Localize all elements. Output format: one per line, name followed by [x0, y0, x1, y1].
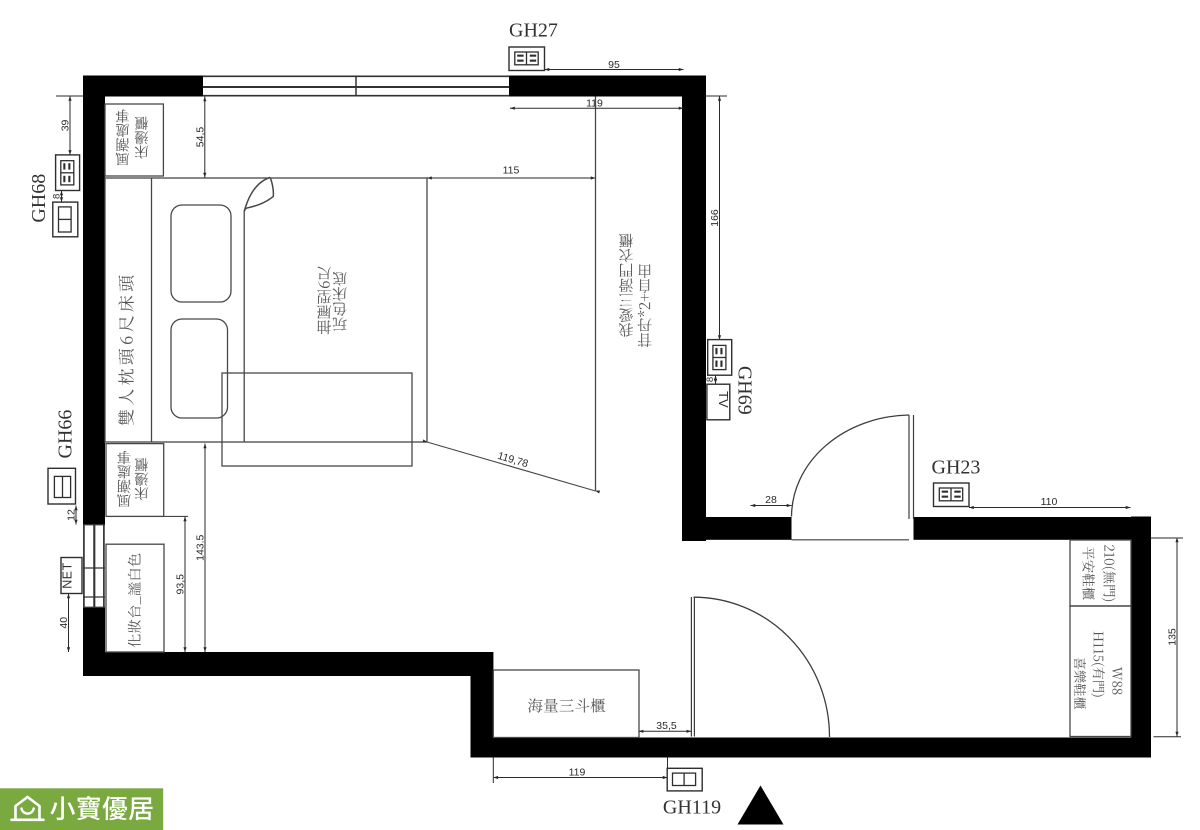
svg-text:GH68: GH68 [28, 174, 50, 223]
svg-text:GH66: GH66 [55, 410, 77, 459]
svg-text:GH23: GH23 [932, 457, 981, 479]
svg-text:119: 119 [586, 98, 603, 110]
svg-text:GH69: GH69 [734, 366, 756, 415]
svg-text:GH119: GH119 [663, 797, 721, 819]
svg-text:8: 8 [52, 194, 63, 199]
svg-text:115: 115 [503, 165, 520, 177]
svg-text:GH27: GH27 [509, 19, 558, 41]
svg-text:28: 28 [765, 494, 777, 506]
svg-text:39: 39 [60, 119, 72, 131]
svg-text:12: 12 [66, 509, 78, 521]
svg-text:93,5: 93,5 [175, 574, 187, 595]
svg-text:8: 8 [705, 377, 716, 382]
svg-text:95: 95 [608, 59, 620, 71]
svg-text:110: 110 [1041, 496, 1058, 508]
svg-text:35,5: 35,5 [656, 720, 677, 732]
svg-text:135: 135 [1167, 628, 1179, 646]
svg-text:143.5: 143.5 [195, 534, 207, 560]
svg-text:166: 166 [709, 209, 721, 227]
svg-text:TV: TV [716, 391, 731, 408]
svg-text:NET: NET [61, 562, 75, 589]
svg-text:119: 119 [569, 766, 586, 778]
svg-text:40: 40 [58, 617, 70, 629]
svg-text:54,5: 54,5 [194, 127, 206, 148]
